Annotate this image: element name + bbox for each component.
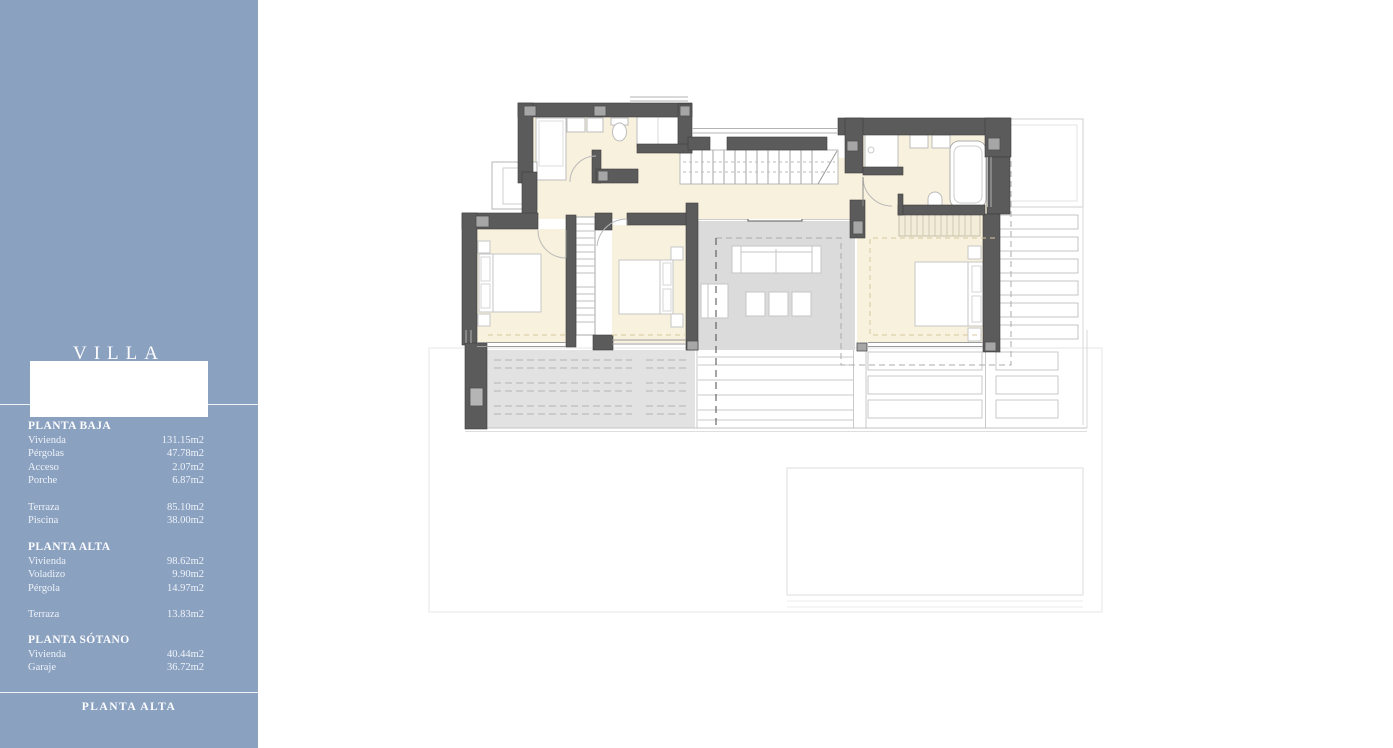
side-table	[478, 241, 490, 253]
area-value: 47.78m2	[167, 447, 204, 460]
floor-plan-svg	[258, 0, 1393, 748]
area-value: 2.07m2	[172, 461, 204, 474]
area-row: Vivienda98.62m2	[28, 555, 204, 568]
sink	[910, 135, 928, 148]
area-value: 40.44m2	[167, 648, 204, 661]
area-label: Pérgolas	[28, 447, 64, 460]
side-table	[671, 247, 683, 260]
floor-plan-area	[258, 0, 1393, 748]
area-label: Terraza	[28, 501, 59, 514]
sink	[587, 118, 603, 132]
area-value: 98.62m2	[167, 555, 204, 568]
side-table	[478, 314, 490, 326]
area-label: Acceso	[28, 461, 59, 474]
area-value: 14.97m2	[167, 582, 204, 595]
area-row: Vivienda131.15m2	[28, 434, 204, 447]
area-label: Terraza	[28, 608, 59, 621]
area-value: 13.83m2	[167, 608, 204, 621]
deck	[465, 350, 1087, 432]
area-label: Garaje	[28, 661, 56, 674]
section-title: PLANTA ALTA	[28, 541, 204, 553]
sidebar: VILLA PLANTA BAJA Vivienda131.15m2 Pérgo…	[0, 0, 258, 748]
area-value: 38.00m2	[167, 514, 204, 527]
area-value: 9.90m2	[172, 568, 204, 581]
area-label: Voladizo	[28, 568, 65, 581]
area-label: Vivienda	[28, 648, 66, 661]
area-value: 36.72m2	[167, 661, 204, 674]
area-label: Vivienda	[28, 434, 66, 447]
area-value: 85.10m2	[167, 501, 204, 514]
area-label: Vivienda	[28, 555, 66, 568]
section-title: PLANTA SÓTANO	[28, 634, 204, 646]
armchair	[701, 284, 728, 318]
area-value: 6.87m2	[172, 474, 204, 487]
page: VILLA PLANTA BAJA Vivienda131.15m2 Pérgo…	[0, 0, 1393, 748]
section-title: PLANTA BAJA	[28, 420, 204, 432]
area-row: Pérgola14.97m2	[28, 582, 204, 595]
footer-divider-line	[0, 692, 258, 693]
side-table	[671, 314, 683, 327]
area-row: Garaje36.72m2	[28, 661, 204, 674]
area-label: Pérgola	[28, 582, 60, 595]
sidebar-footer: PLANTA ALTA	[0, 701, 258, 713]
area-row: Acceso2.07m2	[28, 461, 204, 474]
coffee-table	[746, 292, 765, 316]
logo-box	[30, 361, 208, 417]
stair-shaft	[576, 217, 595, 335]
side-table	[968, 246, 981, 259]
section-planta-sotano: PLANTA SÓTANO Vivienda40.44m2 Garaje36.7…	[28, 634, 204, 675]
area-row: Piscina38.00m2	[28, 514, 204, 527]
area-value: 131.15m2	[162, 434, 204, 447]
shower	[865, 133, 898, 168]
area-row: Pérgolas47.78m2	[28, 447, 204, 460]
area-label: Piscina	[28, 514, 58, 527]
section-planta-alta: PLANTA ALTA Vivienda98.62m2 Voladizo9.90…	[28, 541, 204, 622]
coffee-table	[769, 292, 788, 316]
central-terrace	[698, 215, 855, 350]
wardrobe	[899, 214, 980, 236]
area-row: Voladizo9.90m2	[28, 568, 204, 581]
sink	[567, 118, 585, 132]
pool-outline	[787, 468, 1083, 595]
area-row: Porche6.87m2	[28, 474, 204, 487]
sink	[932, 135, 950, 148]
area-row: Terraza85.10m2	[28, 501, 204, 514]
toilet	[613, 123, 627, 141]
area-row: Terraza13.83m2	[28, 608, 204, 621]
section-planta-baja: PLANTA BAJA Vivienda131.15m2 Pérgolas47.…	[28, 420, 204, 527]
area-label: Porche	[28, 474, 57, 487]
area-row: Vivienda40.44m2	[28, 648, 204, 661]
coffee-table	[792, 292, 811, 316]
